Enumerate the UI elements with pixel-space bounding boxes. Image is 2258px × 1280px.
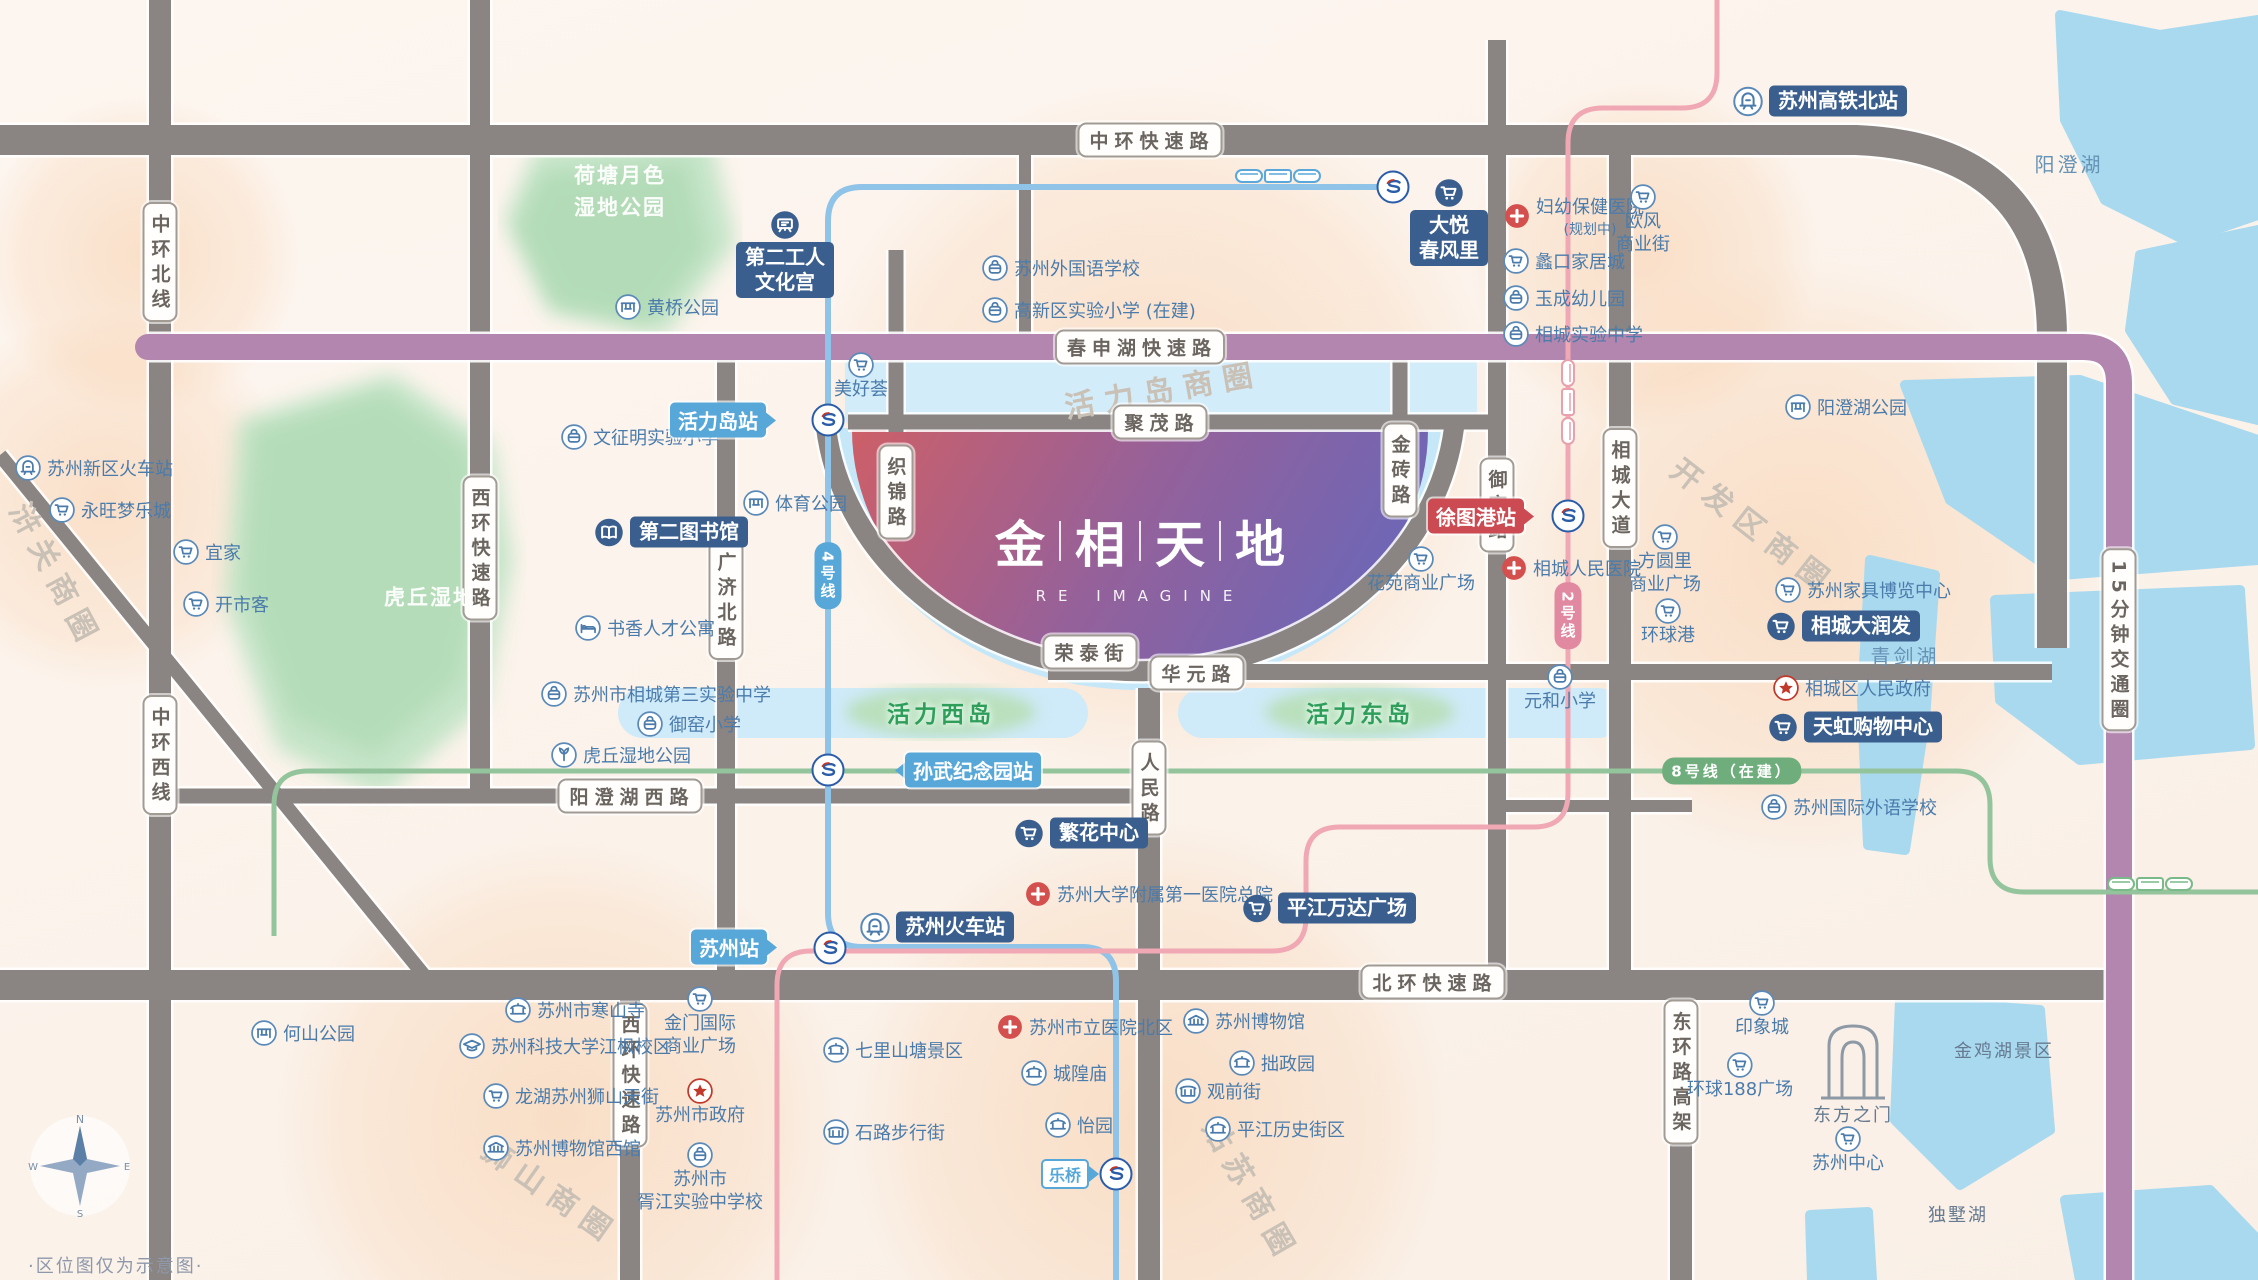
poi-label: 平江万达广场 [1278,893,1416,924]
cart-icon [49,497,75,523]
poi: 平江历史街区 [1205,1116,1345,1142]
poi-label: 平江历史街区 [1237,1120,1345,1141]
cart-icon [687,986,713,1012]
poi-label: 苏州市政府 [655,1106,745,1127]
poi-label: 相城人民医院 [1533,559,1641,580]
poi-label: 虎丘湿地公园 [583,746,691,767]
poi: 石路步行街 [823,1119,945,1145]
poi: 大悦春风里 [1410,178,1488,266]
cart-icon [1655,598,1681,624]
poi: 相城实验中学 [1503,321,1643,347]
poi-label: 观前街 [1207,1082,1261,1103]
metro-station-badge: 徐图港站 [1428,499,1534,534]
poi: 金鸡湖景区 [1954,1037,2054,1063]
compass-w: W [28,1162,38,1173]
school-icon [561,424,587,450]
metro-logo-icon [1551,499,1585,533]
poi: 苏州高铁北站 [1733,86,1907,117]
poi: 独墅湖 [1928,1201,1988,1227]
temple-icon [1205,1116,1231,1142]
area-label: 虎丘湿地 [384,582,476,614]
poi-label: 苏州科技大学江枫校区 [491,1037,671,1058]
poi-label: 蠡口家居城 [1535,252,1625,273]
poi: 拙政园 [1229,1050,1315,1076]
poi: 书香人才公寓 [575,615,715,641]
metro-line-tag: 8号线（在建） [1662,758,1801,785]
museum-icon [483,1135,509,1161]
poi: 金门国际商业广场 [664,986,736,1057]
poi-label: 体育公园 [775,494,847,515]
poi-label: 相城大润发 [1802,611,1920,642]
area-label: 青剑湖 [1871,641,1940,670]
poi: 虎丘湿地 [384,582,476,614]
metro-logo-icon [811,403,845,437]
poi-label: 玉成幼儿园 [1535,289,1625,310]
cart-icon [1630,184,1656,210]
poi: 阳澄湖 [2035,149,2104,178]
school-icon [1503,321,1529,347]
railway-station-label: 苏州火车站 [896,912,1014,943]
poi-label: 书香人才公寓 [607,619,715,640]
park-icon [1785,394,1811,420]
poi: 天虹购物中心 [1768,712,1942,743]
hospital-cross-icon [1501,555,1527,581]
poi-label: 大悦 [1419,213,1479,238]
poi-label: 第二图书馆 [630,517,748,548]
metro-logo [1551,499,1585,533]
poi: 怡园 [1045,1112,1113,1138]
poi-label: 相城实验中学 [1535,325,1643,346]
poi: 苏州博物馆西馆 [483,1135,641,1161]
poi: 高新区实验小学 (在建) [982,297,1196,323]
metro-logo-icon [1376,170,1410,204]
road-label: 15分钟交通圈 [2102,548,2137,731]
cart-icon [1652,524,1678,550]
poi-label: 金门国际 [664,1014,736,1035]
poi: 蠡口家居城 [1503,248,1625,274]
trainfront-icon [860,912,890,942]
project-logo: 金相天地RE IMAGINE [995,505,1285,605]
poi-label: 天虹购物中心 [1804,712,1942,743]
metro-line-tag: 2号线 [1555,582,1582,649]
poi-label: 苏州国际外语学校 [1793,798,1937,819]
poi: 七里山塘景区 [823,1037,963,1063]
cart-icon [1835,1126,1861,1152]
poi-label: 第二工人 [745,245,825,270]
poi: 永旺梦乐城 [49,497,171,523]
metro-station-badge: 苏州站 [691,930,777,965]
school-icon [687,1142,713,1168]
temple-icon [1229,1050,1255,1076]
road-label: 华元路 [1149,656,1244,691]
metro-logo-icon [1099,1157,1133,1191]
road-label: 荣泰街 [1042,635,1137,670]
poi-label: 环球188广场 [1687,1080,1793,1101]
gate-icon [1175,1078,1201,1104]
metro-line-tag: 4号线 [815,542,842,609]
poi-label: 开市客 [215,595,269,616]
trainfront-icon [1733,86,1763,116]
poi: 平江万达广场 [1242,893,1416,924]
poi-label: 苏州中心 [1812,1154,1884,1175]
poi: 第二图书馆 [594,517,748,548]
poi-label: 方圆里 [1638,552,1692,573]
road-label: 春申湖快速路 [1055,330,1225,365]
poi-label: 怡园 [1077,1116,1113,1137]
poi: 苏州外国语学校 [982,255,1140,281]
board-icon [770,210,800,240]
poi: 苏州科技大学江枫校区 [459,1033,671,1059]
station-name: 活力岛站 [670,403,766,438]
school-icon [982,297,1008,323]
poi-label: 宜家 [205,543,241,564]
compass-s: S [77,1209,83,1220]
metro-logo [811,753,845,787]
map-disclaimer: ·区位图仅为示意图· [28,1252,203,1278]
area-label: 活力西岛 [887,695,995,729]
poi: 美好荟 [834,352,888,401]
school-icon [1503,285,1529,311]
metro-station-badge: 活力岛站 [670,403,776,438]
area-label: 东方之门 [1813,1101,1893,1127]
poi-label: 环球港 [1641,626,1695,647]
poi: 苏州火车站 [860,912,1014,943]
poi: 欧风商业街 [1616,184,1670,255]
poi: 相城区人民政府 [1773,675,1931,701]
school-icon [1761,794,1787,820]
poi-label: 苏州家具博览中心 [1807,581,1951,602]
poi-label: 春风里 [1419,238,1479,263]
poi: 第二工人文化宫 [736,210,834,298]
train-illustration [1236,170,1320,182]
poi-label: 苏州市 [673,1170,727,1191]
compass-n: N [76,1113,84,1126]
temple-icon [1021,1060,1047,1086]
poi: 开市客 [183,591,269,617]
bed-icon [575,615,601,641]
location-map: 浒关商圈活力岛商圈开发区商圈狮山商圈姑苏商圈中环快速路中环北线春申湖快速路聚茂路… [0,0,2258,1280]
poi: 玉成幼儿园 [1503,285,1625,311]
poi: 环球188广场 [1687,1052,1793,1101]
poi: 苏州市寒山寺 [505,997,645,1023]
metro-logo-icon [813,931,847,965]
poi: 体育公园 [743,490,847,516]
cap-icon [459,1033,485,1059]
poi-label: 花苑商业广场 [1367,574,1475,595]
poi-label: 苏州市立医院北区 [1029,1018,1173,1039]
gate-icon [823,1119,849,1145]
cart-icon [173,539,199,565]
poi-label: 商业街 [1616,235,1670,256]
poi-label: 苏州市寒山寺 [537,1001,645,1022]
road-label: 织锦路 [879,445,914,540]
poi-label: 胥江实验中学校 [637,1193,763,1214]
cart-icon [1766,611,1796,641]
gate-of-orient-icon [1821,1026,1885,1098]
poi: 苏州中心 [1812,1126,1884,1175]
compass-e: E [124,1162,130,1173]
poi-label: 商业广场 [664,1037,736,1058]
poi-label: 苏州新区火车站 [47,459,173,480]
metro-logo-icon [811,753,845,787]
poi-label: 苏州博物馆 [1215,1012,1305,1033]
poi-label: 相城区人民政府 [1805,679,1931,700]
cart-icon [1768,712,1798,742]
cart-icon [183,591,209,617]
area-label: 阳澄湖 [2035,149,2104,178]
station-name: 苏州站 [691,930,767,965]
area-label: 荷塘月色 [574,161,666,193]
poi-label: 元和小学 [1524,692,1596,713]
poi-label: 石路步行街 [855,1123,945,1144]
road-label: 北环快速路 [1360,965,1505,1000]
poi: 东方之门 [1813,1101,1893,1127]
station-name: 孙武纪念园站 [905,753,1041,788]
poi-label: 欧风 [1625,212,1661,233]
cart-icon [1242,893,1272,923]
poi-label: 文化宫 [745,270,825,295]
poi: 相城人民医院 [1501,555,1641,581]
school-icon [1547,664,1573,690]
road-label: 中环快速路 [1077,123,1222,158]
poi: 苏州国际外语学校 [1761,794,1937,820]
cart-icon [1434,178,1464,208]
poi: 活力东岛 [1306,695,1414,729]
trainfront-icon [15,455,41,481]
poi: 苏州大学附属第一医院总院 [1025,881,1273,907]
cart-icon [1775,577,1801,603]
tree-icon [551,742,577,768]
area-label: 活力东岛 [1306,695,1414,729]
poi: 苏州市相城第三实验中学 [541,681,771,707]
train-illustration [2108,878,2192,890]
poi: 苏州市政府 [655,1078,745,1127]
poi-label: 美好荟 [834,380,888,401]
area-label: 金鸡湖景区 [1954,1037,2054,1063]
poi: 何山公园 [251,1020,355,1046]
school-icon [982,255,1008,281]
poi-label: 永旺梦乐城 [81,501,171,522]
metro-logo [813,931,847,965]
road-label: 西环快速路 [613,1003,648,1148]
cart-icon [1727,1052,1753,1078]
poi: 活力西岛 [887,695,995,729]
poi: 城隍庙 [1021,1060,1107,1086]
train-illustration [1562,360,1574,444]
project-name-char: 相 [1075,505,1125,577]
road-label: 中环北线 [143,202,178,322]
poi-label: 龙湖苏州狮山天街 [515,1087,659,1108]
poi: 繁花中心 [1014,818,1148,849]
poi-label: 何山公园 [283,1024,355,1045]
temple-icon [823,1037,849,1063]
road-label: 阳澄湖西路 [557,779,702,814]
project-name-char: 天 [1155,505,1205,577]
poi-label: 苏州市相城第三实验中学 [573,685,771,706]
cart-icon [1408,546,1434,572]
poi-label: 阳澄湖公园 [1817,398,1907,419]
metro-logo [811,403,845,437]
area-label: 湿地公园 [574,192,666,224]
cart-icon [1749,990,1775,1016]
temple-icon [1045,1112,1071,1138]
government-star-icon [687,1078,713,1104]
road-label: 中环西线 [143,695,178,815]
poi: 苏州博物馆 [1183,1008,1305,1034]
poi: 青剑湖 [1871,641,1940,670]
road-label: 广济北路 [709,540,744,660]
station-name: 徐图港站 [1428,499,1524,534]
school-icon [637,711,663,737]
park-icon [615,294,641,320]
poi: 虎丘湿地公园 [551,742,691,768]
poi-label: 高新区实验小学 (在建) [1014,301,1196,322]
poi-label: 苏州大学附属第一医院总院 [1057,885,1273,906]
cart-icon [848,352,874,378]
book-icon [594,517,624,547]
hospital-cross-icon [1025,881,1051,907]
poi-label: 苏州博物馆西馆 [515,1139,641,1160]
poi-label: 拙政园 [1261,1054,1315,1075]
poi-label: 城隍庙 [1053,1064,1107,1085]
project-name-char: 金 [995,505,1045,577]
road-label: 金砖路 [1383,423,1418,518]
poi-label: 苏州外国语学校 [1014,259,1140,280]
project-subtitle: RE IMAGINE [995,587,1285,605]
poi-label: 黄桥公园 [647,298,719,319]
poi: 苏州市立医院北区 [997,1014,1173,1040]
poi-label: 御窑小学 [669,715,741,736]
poi: 御窑小学 [637,711,741,737]
poi-label: 印象城 [1735,1018,1789,1039]
poi: 观前街 [1175,1078,1261,1104]
park-icon [743,490,769,516]
poi-label: 繁花中心 [1050,818,1148,849]
poi: 苏州新区火车站 [15,455,173,481]
school-icon [541,681,567,707]
government-star-icon [1773,675,1799,701]
park-icon [251,1020,277,1046]
area-label: 独墅湖 [1928,1201,1988,1227]
poi: 环球港 [1641,598,1695,647]
poi: 相城大润发 [1766,611,1920,642]
poi: 阳澄湖公园 [1785,394,1907,420]
metro-station-badge: 孙武纪念园站 [895,753,1041,788]
compass-rose: N E S W [25,1111,135,1225]
cart-icon [483,1083,509,1109]
metro-logo [1099,1157,1133,1191]
poi: 龙湖苏州狮山天街 [483,1083,659,1109]
poi: 花苑商业广场 [1367,546,1475,595]
cart-icon [1014,818,1044,848]
road-label: 聚茂路 [1112,405,1207,440]
railway-station-label: 苏州高铁北站 [1769,86,1907,117]
poi: 元和小学 [1524,664,1596,713]
metro-logo [1376,170,1410,204]
poi: 苏州家具博览中心 [1775,577,1951,603]
poi: 苏州市胥江实验中学校 [637,1142,763,1213]
museum-icon [1183,1008,1209,1034]
poi: 荷塘月色湿地公园 [574,161,666,224]
temple-icon [505,997,531,1023]
cart-icon [1503,248,1529,274]
poi-label: 七里山塘景区 [855,1041,963,1062]
metro-station-badge: 乐桥 [1041,1159,1099,1189]
poi: 黄桥公园 [615,294,719,320]
project-name-char: 地 [1235,505,1285,577]
poi-label: 商业广场 [1629,575,1701,596]
hospital-cross-icon [997,1014,1023,1040]
poi: 宜家 [173,539,241,565]
hospital-cross-icon [1504,203,1530,229]
station-name: 乐桥 [1041,1159,1089,1189]
poi: 方圆里商业广场 [1629,524,1701,595]
poi: 印象城 [1735,990,1789,1039]
